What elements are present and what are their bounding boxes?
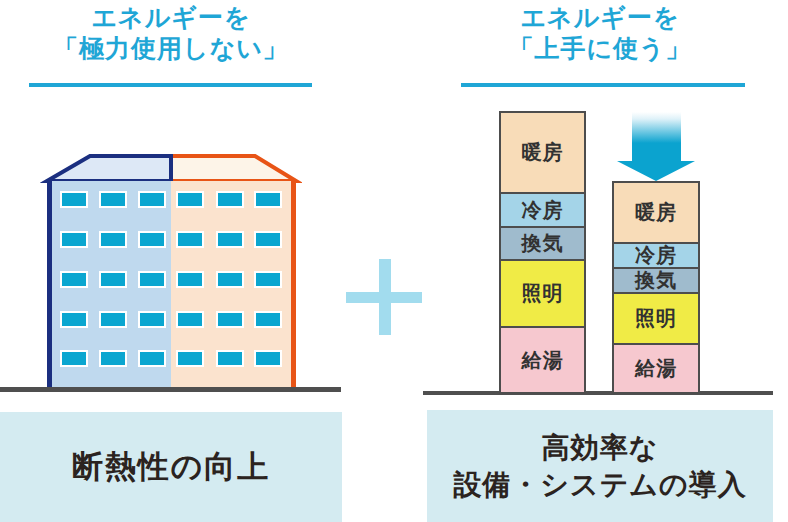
- bar-segment-ventilation: 換気: [614, 267, 698, 292]
- left-title-line2: 「極力使用しない」: [0, 33, 342, 64]
- building-window: [177, 272, 203, 287]
- ground-line-left: [0, 387, 341, 392]
- building-window: [139, 232, 165, 247]
- building-window: [100, 192, 126, 207]
- right-caption-box: 高効率な 設備・システムの導入: [427, 410, 773, 522]
- building-window: [61, 232, 87, 247]
- ground-line-right: [423, 391, 773, 395]
- bar-segment-cooling: 冷房: [501, 192, 584, 226]
- bar-segment-heating: 暖房: [501, 113, 584, 192]
- right-title-underline: [461, 83, 745, 87]
- segment-label: 換気: [635, 267, 677, 294]
- segment-label: 換気: [522, 230, 564, 257]
- segment-label: 給湯: [635, 355, 677, 382]
- energy-bar-after: 暖房 冷房 換気 照明 給湯: [612, 181, 700, 394]
- building-roof-left: [47, 156, 171, 181]
- energy-bar-before: 暖房 冷房 換気 照明 給湯: [499, 111, 586, 394]
- bar-segment-ventilation: 換気: [501, 226, 584, 259]
- building-window: [255, 232, 281, 247]
- building-window: [217, 312, 243, 327]
- right-caption-line2: 設備・システムの導入: [453, 466, 746, 503]
- right-title-line2: 「上手に使う」: [427, 33, 773, 64]
- right-caption-line1: 高効率な: [542, 429, 659, 466]
- segment-label: 暖房: [635, 199, 677, 226]
- building-window: [177, 351, 203, 366]
- plus-icon-horizontal-bar: [346, 292, 422, 303]
- left-title-line1: エネルギーを: [0, 2, 342, 33]
- building-window: [255, 312, 281, 327]
- down-arrow-icon: [612, 110, 702, 184]
- building-window: [255, 351, 281, 366]
- building-illustration: [40, 150, 302, 392]
- building-window: [100, 351, 126, 366]
- building-window: [177, 232, 203, 247]
- building-roof-right: [171, 156, 296, 181]
- building-window: [100, 272, 126, 287]
- building-window: [139, 272, 165, 287]
- building-window: [217, 351, 243, 366]
- right-title-line1: エネルギーを: [427, 2, 773, 33]
- building-window: [100, 232, 126, 247]
- building-window: [255, 192, 281, 207]
- segment-label: 給湯: [522, 347, 564, 374]
- left-panel-title: エネルギーを 「極力使用しない」: [0, 2, 342, 64]
- right-panel-title: エネルギーを 「上手に使う」: [427, 2, 773, 64]
- building-window: [100, 312, 126, 327]
- plus-icon: [340, 255, 428, 339]
- building-window: [139, 312, 165, 327]
- bar-segment-hot-water: 給湯: [614, 343, 698, 392]
- building-window: [61, 272, 87, 287]
- building-window: [61, 192, 87, 207]
- bar-segment-lighting: 照明: [614, 292, 698, 343]
- building-window: [139, 351, 165, 366]
- building-window: [217, 192, 243, 207]
- segment-label: 冷房: [635, 242, 677, 269]
- building-window: [255, 272, 281, 287]
- segment-label: 冷房: [522, 197, 564, 224]
- left-caption-box: 断熱性の向上: [0, 412, 342, 522]
- building-window: [217, 232, 243, 247]
- bar-segment-lighting: 照明: [501, 259, 584, 326]
- building-window: [61, 312, 87, 327]
- segment-label: 照明: [522, 280, 564, 307]
- segment-label: 暖房: [522, 139, 564, 166]
- building-window: [177, 192, 203, 207]
- bar-segment-heating: 暖房: [614, 183, 698, 242]
- building-window: [139, 192, 165, 207]
- building-window: [177, 312, 203, 327]
- building-window: [217, 272, 243, 287]
- building-window: [61, 351, 87, 366]
- left-caption-text: 断熱性の向上: [72, 446, 271, 488]
- left-title-underline: [29, 83, 312, 87]
- segment-label: 照明: [635, 305, 677, 332]
- energy-saving-diagram: エネルギーを 「極力使用しない」 エネルギーを 「上手に使う」: [0, 0, 788, 522]
- bar-segment-cooling: 冷房: [614, 242, 698, 267]
- bar-segment-hot-water: 給湯: [501, 326, 584, 392]
